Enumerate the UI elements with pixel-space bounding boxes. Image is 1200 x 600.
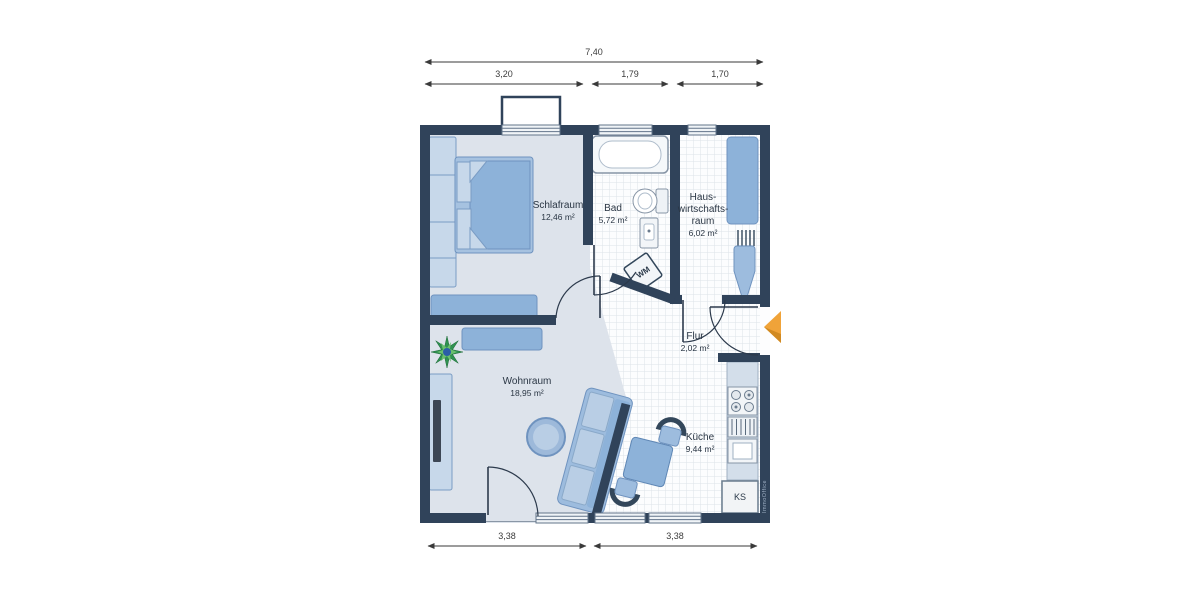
- window-bedroom: [502, 125, 560, 135]
- svg-text:wirtschafts-: wirtschafts-: [677, 204, 729, 215]
- fridge: KS: [722, 481, 758, 513]
- label-kueche: Küche: [686, 432, 715, 443]
- bathtub: [592, 136, 668, 173]
- label-schlafraum: Schlafraum: [533, 200, 584, 211]
- sideboard: [462, 328, 542, 350]
- dim-bottom-1: 3,38: [666, 531, 684, 541]
- dim-top-2: 1,70: [711, 69, 729, 79]
- label-wohnraum: Wohnraum: [503, 376, 552, 387]
- tv: [433, 400, 441, 462]
- dish-drainer: [728, 417, 757, 437]
- stove: [728, 387, 757, 415]
- wall-right-upper: [760, 125, 770, 307]
- window-bay: [502, 97, 560, 129]
- wall-bath-utility: [670, 135, 680, 303]
- window-utility: [688, 125, 716, 135]
- watermark: ImmoOffice: [762, 480, 768, 513]
- label-bad: Bad: [604, 203, 622, 214]
- toilet: [633, 189, 668, 213]
- washbasin: [640, 218, 658, 248]
- window-kitchen-2: [649, 513, 701, 523]
- wall-top: [420, 125, 770, 135]
- floor-plan-svg: WM KS: [0, 0, 1200, 600]
- sink: [728, 439, 757, 463]
- dresser: [431, 295, 537, 318]
- svg-text:Haus-: Haus-: [690, 192, 717, 203]
- wardrobe: [429, 137, 456, 287]
- dim-total: 7,40: [585, 47, 603, 57]
- bed-pillow: [457, 209, 471, 249]
- label-flur: Flur: [686, 331, 704, 342]
- fridge-label: KS: [734, 492, 746, 502]
- wall-bedroom-bath: [583, 135, 593, 245]
- dim-top-1: 1,79: [621, 69, 639, 79]
- floor-plan-page: WM KS: [0, 0, 1200, 600]
- area-flur: 2,02 m²: [681, 343, 710, 353]
- window-living: [536, 513, 588, 523]
- svg-text:raum: raum: [692, 216, 715, 227]
- utility-cabinet: [727, 137, 758, 224]
- area-bad: 5,72 m²: [599, 215, 628, 225]
- bed: [455, 157, 533, 253]
- area-kueche: 9,44 m²: [686, 444, 715, 454]
- plant: [431, 336, 463, 368]
- dim-top-0: 3,20: [495, 69, 513, 79]
- window-kitchen-1: [595, 513, 645, 523]
- area-wohnraum: 18,95 m²: [510, 388, 544, 398]
- coffee-table: [527, 418, 565, 456]
- bed-pillow: [457, 162, 471, 202]
- area-hauswirtschaftsraum: 6,02 m²: [689, 228, 718, 238]
- tv-lowboard: [429, 374, 452, 490]
- window-bath: [599, 125, 652, 135]
- bed-blanket: [470, 161, 530, 249]
- wall-bedroom-bottom: [420, 315, 558, 325]
- area-schlafraum: 12,46 m²: [541, 212, 575, 222]
- bedroom-door-opening: [556, 315, 602, 325]
- dim-bottom-0: 3,38: [498, 531, 516, 541]
- wall-utility-bottom-right: [722, 295, 770, 304]
